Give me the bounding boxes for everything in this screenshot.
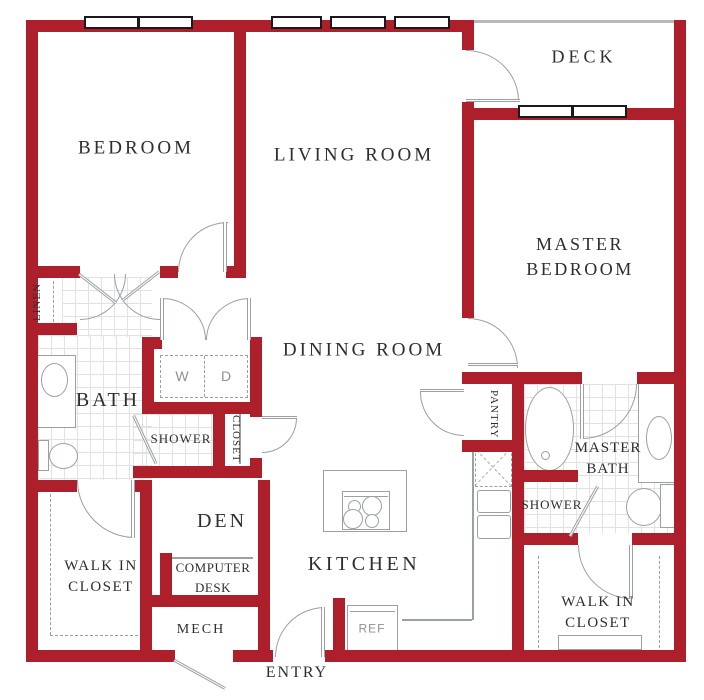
linen-label: LINEN: [31, 279, 51, 325]
computer-desk-label: COMPUTER DESK: [163, 558, 263, 598]
walkin-closet-label: WALK IN CLOSET: [49, 556, 154, 598]
laundry-door-leaf: [247, 298, 251, 340]
wall: [32, 266, 80, 278]
walkin-closet-door-swing: [77, 480, 135, 538]
master-closet-rod: [659, 556, 660, 648]
shower-label: SHOWER: [151, 430, 212, 448]
deck-label: DECK: [552, 44, 617, 69]
window: [394, 16, 450, 29]
pantry-label: PANTRY: [482, 388, 500, 440]
closet-shelf: [558, 635, 642, 650]
wall: [142, 337, 162, 349]
master-closet-rod: [538, 556, 539, 648]
walkin-closet-door-leaf: [131, 480, 135, 538]
window: [330, 16, 386, 29]
laundry-door-leaf: [160, 298, 164, 340]
hall-closet-label: CLOSET: [222, 412, 242, 466]
bedroom-door-leaf: [223, 222, 227, 272]
master-walkin-closet-label: WALK IN CLOSET: [546, 592, 651, 634]
deck-door-swing: [466, 50, 519, 101]
bedroom-label: BEDROOM: [78, 136, 194, 163]
laundry-door-swing: [206, 298, 250, 340]
wall: [226, 266, 246, 278]
wall: [32, 480, 77, 492]
refrigerator-edge: [350, 611, 395, 612]
mech-door-leaf: [174, 659, 226, 690]
mech-label: MECH: [177, 620, 225, 640]
floor-plan: BEDROOM LIVING ROOM DECK MASTER BEDROOM …: [0, 0, 704, 700]
bath-sink-fixture: [41, 363, 68, 397]
den-label: DEN: [197, 507, 247, 535]
master-bath-door-leaf: [580, 384, 584, 439]
master-bedroom-door-swing: [468, 318, 518, 368]
bath-label: BATH: [76, 386, 140, 414]
closet-door-leaf: [262, 416, 297, 419]
entry-label: ENTRY: [266, 662, 328, 684]
dishwasher-appliance: [477, 490, 511, 513]
living-room-label: LIVING ROOM: [274, 143, 434, 170]
linen-shelf-dash: [53, 281, 54, 322]
bathtub-drain: [541, 451, 550, 460]
wall: [133, 466, 262, 478]
wall: [142, 402, 262, 414]
toilet-fixture: [49, 443, 78, 469]
master-bedroom-label: MASTER BEDROOM: [505, 232, 655, 282]
wall: [26, 20, 38, 662]
wall: [26, 650, 175, 662]
wall: [674, 20, 686, 662]
kitchen-counter-edge: [402, 619, 472, 621]
pantry-door-swing: [420, 392, 464, 436]
closet-door-swing: [262, 418, 297, 453]
master-closet-door-swing: [578, 545, 632, 599]
deck-door-threshold: [466, 99, 520, 102]
deck-rail: [474, 20, 676, 23]
washer-dryer-divider: [204, 356, 205, 397]
window: [572, 105, 627, 118]
wall: [333, 598, 345, 662]
refrigerator-label: REF: [359, 621, 386, 638]
walkin-closet-rod: [50, 635, 143, 636]
wall: [632, 533, 686, 545]
entry-door-leaf: [321, 607, 325, 657]
wall: [258, 595, 270, 662]
master-toilet-fixture: [626, 488, 662, 526]
window: [271, 16, 322, 29]
washer-label: W: [175, 367, 188, 387]
wall: [637, 372, 686, 384]
master-bath-label: MASTER BATH: [566, 438, 651, 480]
window: [84, 16, 139, 29]
kitchen-counter-edge: [472, 441, 474, 620]
burner: [343, 509, 363, 529]
bedroom-door-swing: [178, 222, 228, 272]
pantry-door-leaf: [420, 389, 464, 392]
master-bedroom-door-leaf: [468, 363, 518, 366]
kitchen-label: KITCHEN: [308, 550, 420, 578]
window: [518, 105, 573, 118]
wall: [325, 650, 686, 662]
wall: [462, 440, 512, 452]
burner: [362, 496, 382, 516]
dryer-label: D: [221, 367, 231, 387]
wall: [160, 266, 178, 278]
wall: [512, 372, 524, 662]
master-closet-door-leaf: [629, 545, 633, 599]
laundry-door-swing: [162, 298, 206, 340]
toilet-tank: [38, 440, 49, 471]
oven-appliance: [477, 515, 511, 539]
window: [138, 16, 193, 29]
wall: [462, 20, 474, 50]
entry-door-swing: [275, 607, 325, 657]
master-shower-label: SHOWER: [522, 496, 583, 514]
burner: [365, 514, 379, 528]
wall: [234, 32, 246, 268]
dining-room-label: DINING ROOM: [283, 338, 445, 365]
wall: [462, 102, 474, 318]
